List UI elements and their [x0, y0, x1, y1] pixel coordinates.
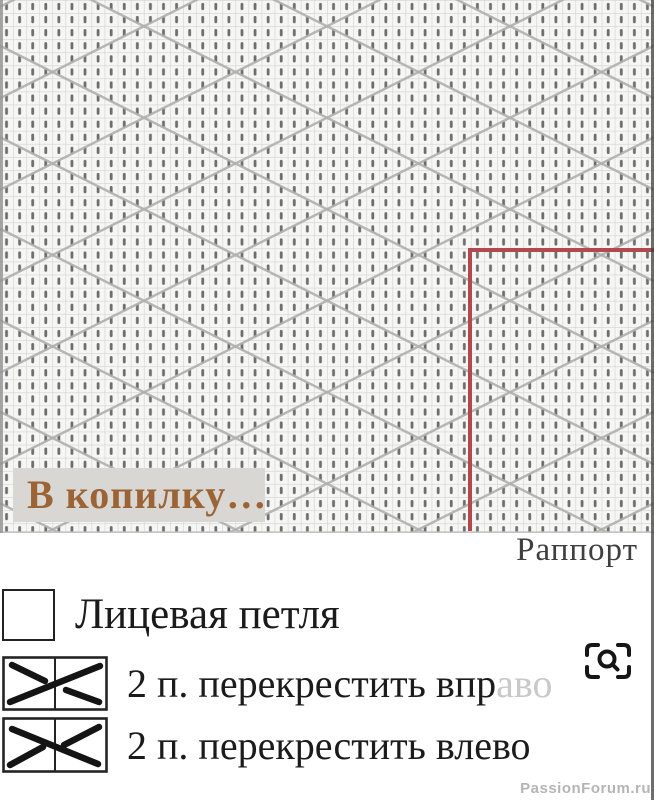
copilka-watermark: В копилку…	[13, 468, 265, 522]
knit-stitch-symbol	[2, 589, 55, 641]
cross-right-symbol	[2, 656, 108, 711]
legend-label-cross-left: 2 п. перекрестить влево	[127, 722, 531, 769]
knitting-chart: В копилку…	[0, 0, 654, 533]
rapport-label: Раппорт	[516, 532, 638, 569]
chart-pattern-svg	[0, 0, 654, 533]
legend-label-knit: Лицевая петля	[75, 590, 340, 639]
legend-row-cross-left: 2 п. перекрестить влево	[2, 717, 531, 773]
cross-left-symbol	[2, 717, 108, 773]
photo-edge-left	[0, 0, 3, 533]
site-watermark: PassionForum.ru	[520, 780, 651, 797]
legend-row-cross-right: 2 п. перекрестить вправо	[2, 656, 553, 711]
legend-row-knit: Лицевая петля	[2, 588, 340, 641]
legend-label-cross-right: 2 п. перекрестить вправо	[127, 660, 553, 707]
magnifier-scan-icon[interactable]	[584, 642, 632, 680]
